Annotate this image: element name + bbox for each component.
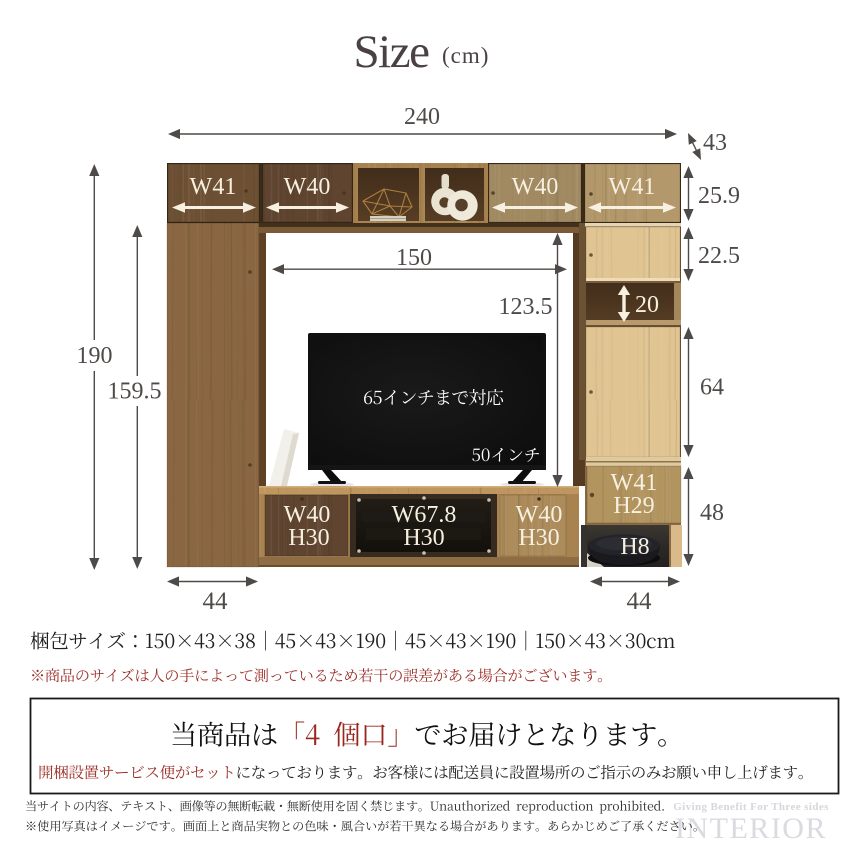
svg-text:44: 44 xyxy=(203,588,229,615)
svg-text:123.5: 123.5 xyxy=(499,294,553,320)
svg-text:Size: Size xyxy=(354,26,430,78)
svg-text:22.5: 22.5 xyxy=(698,243,740,269)
svg-text:H30: H30 xyxy=(288,525,329,551)
svg-text:43: 43 xyxy=(703,130,727,156)
svg-text:48: 48 xyxy=(700,500,724,526)
svg-text:INTERIOR: INTERIOR xyxy=(675,812,827,845)
svg-text:H8: H8 xyxy=(620,534,649,560)
svg-text:W40: W40 xyxy=(284,174,331,200)
svg-text:190: 190 xyxy=(77,343,113,369)
svg-text:H30: H30 xyxy=(403,525,444,551)
svg-text:20: 20 xyxy=(635,292,659,318)
svg-text:W41: W41 xyxy=(190,174,237,200)
svg-text:(cm): (cm) xyxy=(442,43,489,68)
svg-text:W40: W40 xyxy=(512,174,559,200)
svg-text:W41: W41 xyxy=(609,174,656,200)
svg-text:150: 150 xyxy=(396,245,432,271)
svg-text:H30: H30 xyxy=(518,525,559,551)
svg-text:240: 240 xyxy=(404,104,440,130)
svg-text:H29: H29 xyxy=(613,493,654,519)
svg-text:159.5: 159.5 xyxy=(108,379,162,405)
svg-text:25.9: 25.9 xyxy=(698,183,740,209)
svg-text:44: 44 xyxy=(627,588,653,615)
svg-text:64: 64 xyxy=(700,375,724,401)
